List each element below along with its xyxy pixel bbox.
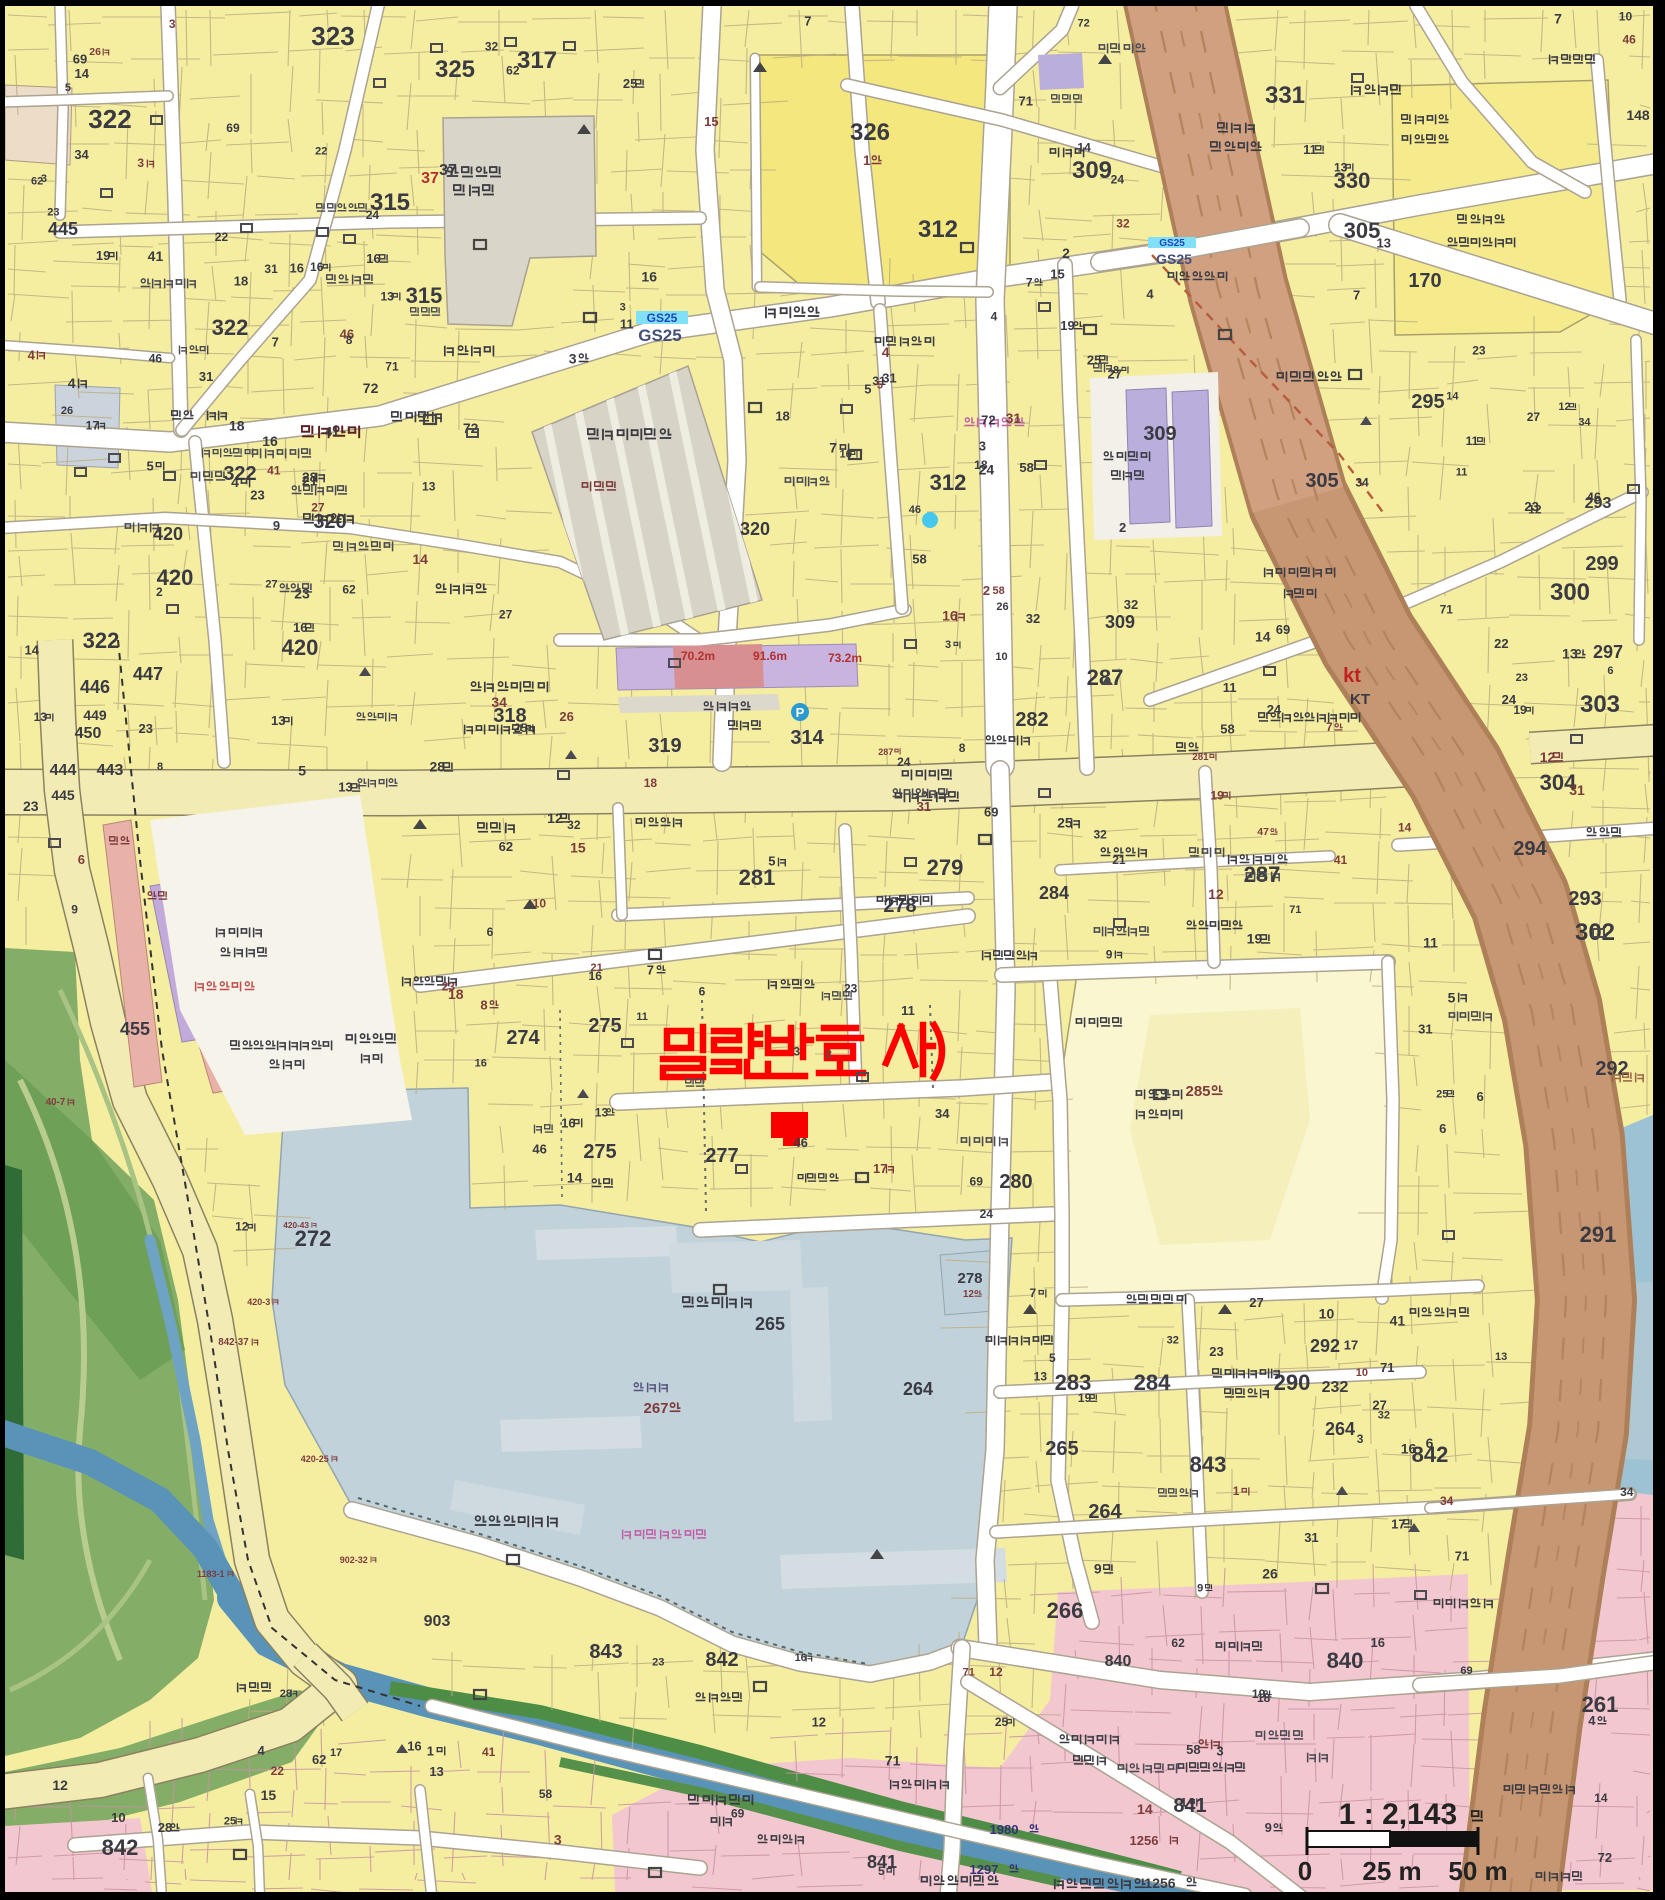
svg-text:31: 31 (1418, 1021, 1432, 1036)
svg-text:16: 16 (1401, 1441, 1417, 1457)
svg-text:27: 27 (265, 579, 277, 591)
svg-text:14: 14 (74, 66, 89, 81)
svg-text:46: 46 (793, 1135, 807, 1150)
svg-text:8: 8 (480, 997, 487, 1012)
svg-text:26: 26 (996, 601, 1008, 613)
svg-text:5: 5 (864, 381, 871, 396)
svg-text:9: 9 (273, 518, 280, 533)
svg-text:842: 842 (102, 1835, 139, 1860)
svg-text:GS25: GS25 (1159, 238, 1185, 249)
svg-text:13: 13 (1495, 1351, 1507, 1363)
svg-text:16: 16 (942, 607, 958, 623)
svg-text:32: 32 (485, 40, 499, 54)
svg-text:46: 46 (909, 504, 921, 516)
svg-text:305: 305 (1305, 470, 1338, 492)
svg-text:2: 2 (156, 585, 163, 599)
svg-text:P: P (796, 705, 805, 720)
svg-text:315: 315 (406, 283, 443, 308)
svg-text:322: 322 (212, 315, 249, 340)
svg-text:46: 46 (1587, 490, 1601, 505)
svg-text:1980: 1980 (990, 1822, 1019, 1837)
svg-text:28: 28 (158, 1820, 172, 1835)
svg-text:23: 23 (250, 488, 264, 503)
svg-text:5: 5 (878, 1864, 885, 1878)
svg-text:27: 27 (499, 608, 513, 622)
svg-text:4: 4 (68, 375, 76, 391)
svg-text:284: 284 (1039, 883, 1069, 903)
svg-text:16: 16 (475, 1058, 487, 1070)
svg-text:7: 7 (272, 334, 279, 349)
svg-text:281: 281 (739, 865, 776, 890)
svg-text:2: 2 (1119, 520, 1126, 535)
svg-text:23: 23 (1209, 1344, 1223, 1359)
svg-text:71: 71 (885, 1752, 901, 1768)
svg-text:62: 62 (312, 1752, 326, 1767)
svg-text:27: 27 (1372, 1398, 1386, 1413)
svg-text:3: 3 (554, 1832, 562, 1848)
svg-text:280: 280 (999, 1171, 1032, 1193)
svg-text:5: 5 (298, 763, 306, 779)
svg-text:71: 71 (1440, 603, 1454, 617)
svg-text:18: 18 (974, 458, 988, 472)
svg-text:14: 14 (412, 551, 428, 567)
svg-text:447: 447 (133, 664, 163, 684)
svg-text:41: 41 (1334, 853, 1348, 867)
svg-text:8: 8 (157, 761, 163, 773)
svg-text:41: 41 (1390, 1312, 1406, 1328)
svg-text:23: 23 (47, 207, 59, 219)
svg-text:7: 7 (829, 440, 837, 456)
svg-text:31: 31 (1006, 410, 1022, 426)
svg-text:24: 24 (366, 208, 380, 222)
svg-text:58: 58 (1220, 722, 1234, 737)
svg-text:18: 18 (775, 408, 789, 423)
svg-text:7: 7 (647, 962, 654, 977)
svg-text:GS25: GS25 (638, 326, 681, 345)
svg-text:19: 19 (1513, 703, 1527, 717)
svg-text:72: 72 (363, 380, 379, 396)
svg-text:40-7: 40-7 (46, 1097, 66, 1108)
svg-text:275: 275 (583, 1141, 616, 1163)
svg-text:12: 12 (963, 1289, 974, 1300)
svg-text:12: 12 (812, 1714, 826, 1729)
svg-text:3: 3 (169, 17, 176, 31)
svg-text:15: 15 (570, 840, 586, 856)
svg-text:8: 8 (346, 333, 353, 347)
svg-text:3: 3 (620, 301, 626, 313)
svg-text:21: 21 (590, 962, 602, 974)
svg-text:69: 69 (226, 121, 240, 135)
svg-text:19: 19 (1060, 318, 1074, 333)
svg-text:13: 13 (338, 780, 352, 795)
svg-text:297: 297 (1593, 642, 1623, 662)
svg-text:264: 264 (1088, 1501, 1122, 1523)
svg-text:7: 7 (1026, 276, 1033, 290)
svg-text:148: 148 (1626, 107, 1650, 123)
svg-text:3: 3 (793, 1045, 800, 1059)
svg-text:2: 2 (983, 583, 990, 598)
svg-text:1256: 1256 (1130, 1833, 1159, 1848)
svg-text:285: 285 (1185, 1083, 1210, 1100)
svg-text:16: 16 (366, 251, 380, 266)
svg-text:278: 278 (957, 1270, 982, 1287)
svg-text:27: 27 (1527, 410, 1541, 424)
svg-text:GS25: GS25 (647, 311, 678, 325)
svg-text:23: 23 (23, 798, 39, 814)
svg-text:842: 842 (705, 1649, 738, 1671)
svg-text:23: 23 (1472, 343, 1486, 357)
svg-text:69: 69 (73, 51, 87, 66)
svg-text:322: 322 (88, 104, 131, 134)
svg-text:6: 6 (487, 925, 494, 939)
svg-text:293: 293 (1568, 888, 1601, 910)
svg-text:443: 443 (97, 762, 124, 779)
svg-text:70.2m: 70.2m (681, 649, 715, 663)
svg-text:69: 69 (1276, 622, 1290, 637)
svg-text:279: 279 (927, 855, 964, 880)
svg-text:16: 16 (262, 433, 278, 449)
svg-text:13: 13 (595, 1106, 609, 1120)
svg-text:13: 13 (422, 480, 436, 494)
svg-text:9: 9 (1106, 947, 1113, 961)
svg-text:9: 9 (1094, 1560, 1102, 1576)
svg-text:14: 14 (1255, 629, 1271, 645)
svg-text:267: 267 (643, 1400, 668, 1417)
svg-text:25: 25 (224, 1815, 236, 1827)
svg-text:69: 69 (984, 805, 998, 820)
svg-text:26: 26 (559, 709, 573, 724)
svg-text:0: 0 (1298, 1856, 1312, 1886)
svg-text:34: 34 (1440, 1494, 1454, 1508)
svg-text:6: 6 (1439, 1121, 1446, 1136)
svg-text:1: 1 (863, 153, 871, 168)
svg-text:22: 22 (215, 230, 229, 244)
svg-text:2: 2 (1062, 245, 1070, 261)
svg-text:903: 903 (424, 1613, 451, 1630)
svg-text:22: 22 (1494, 636, 1508, 651)
svg-text:16: 16 (1371, 1635, 1385, 1650)
svg-text:58: 58 (1186, 1742, 1200, 1757)
svg-text:71: 71 (963, 1667, 975, 1679)
svg-text:8: 8 (825, 1047, 832, 1061)
svg-text:13: 13 (429, 1764, 443, 1779)
svg-text:28: 28 (280, 1688, 292, 1700)
svg-text:50 m: 50 m (1448, 1856, 1507, 1886)
svg-text:26: 26 (61, 405, 73, 417)
svg-text:3: 3 (41, 173, 47, 185)
svg-text:3: 3 (945, 639, 951, 651)
svg-text:4: 4 (258, 1743, 266, 1758)
svg-text:25: 25 (995, 1715, 1009, 1729)
svg-text:902-32: 902-32 (340, 1555, 368, 1565)
svg-text:291: 291 (1580, 1222, 1617, 1247)
svg-text:34: 34 (74, 147, 89, 162)
svg-text:41: 41 (482, 1745, 496, 1759)
svg-text:11: 11 (1223, 680, 1237, 695)
svg-text:15: 15 (1050, 267, 1064, 282)
svg-text:1297: 1297 (970, 1862, 999, 1877)
svg-text:46: 46 (532, 1142, 546, 1157)
svg-text:72: 72 (1598, 1850, 1612, 1865)
svg-text:KT: KT (1350, 691, 1370, 708)
svg-text:7: 7 (1029, 1286, 1036, 1300)
svg-text:12: 12 (989, 1665, 1003, 1679)
svg-text:17: 17 (330, 1747, 342, 1759)
svg-text:1: 1 (427, 1743, 434, 1758)
svg-text:18: 18 (229, 417, 245, 433)
svg-text:309: 309 (1143, 423, 1176, 445)
svg-text:294: 294 (1513, 838, 1547, 860)
svg-text:444: 444 (50, 762, 77, 779)
svg-text:275: 275 (588, 1015, 621, 1037)
svg-text:25: 25 (514, 721, 528, 735)
svg-text:15: 15 (704, 114, 718, 129)
svg-text:28: 28 (429, 759, 445, 775)
svg-text:11: 11 (636, 1011, 648, 1023)
svg-text:14: 14 (1398, 821, 1412, 835)
svg-text:23: 23 (652, 1656, 664, 1668)
svg-text:3: 3 (1216, 1743, 1223, 1758)
svg-text:71: 71 (1455, 1549, 1469, 1564)
svg-text:13: 13 (34, 710, 48, 724)
svg-text:16: 16 (407, 1738, 421, 1753)
svg-text:31: 31 (264, 262, 278, 276)
svg-text:420-25: 420-25 (301, 1454, 329, 1464)
svg-text:34: 34 (491, 694, 507, 710)
svg-text:295: 295 (1411, 391, 1444, 413)
svg-text:22: 22 (271, 1764, 285, 1778)
svg-text:305: 305 (1344, 218, 1381, 243)
svg-text:62: 62 (1171, 1636, 1185, 1650)
svg-text:261: 261 (1582, 1692, 1619, 1717)
svg-text:312: 312 (930, 470, 967, 495)
svg-text:6: 6 (1426, 1435, 1434, 1451)
svg-text:15: 15 (261, 1787, 277, 1803)
svg-text:1: 1 (1233, 1484, 1240, 1498)
svg-text:27: 27 (311, 501, 325, 515)
svg-text:314: 314 (790, 727, 824, 749)
svg-text:446: 446 (80, 677, 110, 697)
svg-text:277: 277 (705, 1145, 738, 1167)
svg-text:69: 69 (970, 1175, 984, 1189)
svg-text:13: 13 (1562, 646, 1578, 662)
svg-text:1256: 1256 (1144, 1875, 1175, 1891)
svg-text:842-37: 842-37 (218, 1337, 248, 1348)
svg-text:302: 302 (1575, 919, 1615, 946)
svg-text:10: 10 (111, 1810, 125, 1825)
svg-text:34: 34 (935, 1106, 950, 1121)
svg-text:71: 71 (1019, 94, 1033, 109)
svg-text:840: 840 (1327, 1648, 1364, 1673)
svg-text:6: 6 (1607, 665, 1613, 677)
svg-text:62: 62 (342, 583, 356, 597)
svg-text:3: 3 (979, 439, 986, 454)
svg-text:1 : 2,143: 1 : 2,143 (1339, 1798, 1457, 1831)
svg-text:265: 265 (1045, 1438, 1078, 1460)
svg-text:4: 4 (1146, 286, 1154, 301)
svg-text:420-3: 420-3 (247, 1297, 270, 1307)
svg-text:41: 41 (325, 424, 339, 439)
svg-text:27: 27 (1249, 1295, 1263, 1310)
svg-text:72: 72 (1077, 18, 1089, 30)
svg-text:6: 6 (1476, 1089, 1483, 1104)
svg-text:3: 3 (569, 350, 577, 366)
svg-text:12: 12 (1528, 502, 1542, 516)
svg-text:16: 16 (310, 260, 324, 274)
svg-text:303: 303 (1580, 691, 1620, 718)
svg-text:46: 46 (1622, 33, 1636, 47)
svg-text:4: 4 (882, 344, 890, 360)
svg-text:843: 843 (589, 1641, 622, 1663)
svg-text:449: 449 (83, 707, 107, 723)
svg-text:7: 7 (1353, 287, 1360, 302)
svg-text:11: 11 (1303, 142, 1317, 157)
svg-text:72: 72 (463, 420, 479, 436)
svg-text:19: 19 (1210, 789, 1224, 803)
svg-text:4: 4 (991, 309, 998, 323)
svg-text:24: 24 (1111, 172, 1125, 186)
svg-text:11: 11 (620, 317, 634, 332)
svg-text:14: 14 (1137, 1801, 1153, 1817)
svg-text:71: 71 (1289, 904, 1301, 916)
svg-text:5: 5 (65, 82, 71, 94)
svg-text:10: 10 (995, 651, 1007, 663)
svg-text:13: 13 (1377, 236, 1391, 251)
svg-text:265: 265 (755, 1314, 785, 1334)
svg-text:71: 71 (385, 360, 399, 374)
svg-text:32: 32 (1026, 611, 1040, 626)
svg-text:32: 32 (1094, 827, 1108, 841)
svg-text:13: 13 (271, 713, 285, 728)
svg-text:26: 26 (89, 46, 101, 58)
svg-text:7: 7 (804, 13, 811, 28)
svg-text:14: 14 (1446, 390, 1459, 402)
svg-text:31: 31 (917, 799, 931, 814)
svg-text:11: 11 (1456, 467, 1468, 479)
svg-text:14: 14 (24, 643, 39, 658)
svg-text:445: 445 (51, 787, 75, 803)
svg-text:32: 32 (1124, 597, 1138, 612)
svg-text:8: 8 (959, 741, 966, 755)
svg-text:16: 16 (795, 1652, 807, 1664)
svg-text:24: 24 (1267, 702, 1282, 717)
svg-text:4: 4 (231, 474, 239, 490)
svg-text:12: 12 (1208, 886, 1224, 902)
svg-text:7: 7 (1554, 10, 1562, 26)
svg-text:37: 37 (421, 170, 439, 187)
svg-text:309: 309 (1105, 612, 1135, 632)
svg-text:25: 25 (1436, 1088, 1448, 1100)
svg-text:9: 9 (71, 903, 78, 917)
svg-text:13: 13 (380, 289, 394, 303)
svg-text:282: 282 (1015, 709, 1048, 731)
svg-text:34: 34 (1578, 417, 1591, 429)
svg-text:309: 309 (1072, 157, 1112, 184)
svg-text:287: 287 (1087, 665, 1124, 690)
svg-text:14: 14 (1077, 140, 1091, 154)
svg-text:14: 14 (567, 1170, 583, 1186)
svg-text:58: 58 (992, 585, 1004, 597)
svg-text:312: 312 (918, 216, 958, 243)
svg-text:264: 264 (1325, 1419, 1355, 1439)
svg-text:10: 10 (1319, 1306, 1335, 1322)
svg-text:232: 232 (1322, 1379, 1349, 1396)
svg-text:317: 317 (517, 47, 557, 74)
svg-text:264: 264 (903, 1379, 933, 1399)
svg-text:73.2m: 73.2m (828, 651, 862, 665)
svg-text:12: 12 (235, 1220, 249, 1234)
svg-text:18: 18 (644, 776, 658, 790)
svg-text:34: 34 (1355, 476, 1369, 490)
svg-text:284: 284 (1134, 1370, 1171, 1395)
svg-text:9: 9 (1265, 1820, 1272, 1835)
svg-text:299: 299 (1585, 553, 1618, 575)
svg-text:58: 58 (912, 551, 926, 566)
svg-text:323: 323 (311, 21, 354, 51)
svg-text:319: 319 (648, 735, 681, 757)
svg-text:18: 18 (234, 274, 248, 289)
svg-text:32: 32 (567, 818, 581, 832)
svg-text:9: 9 (1197, 1583, 1203, 1595)
svg-text:23: 23 (1516, 672, 1528, 684)
svg-text:69: 69 (1460, 1665, 1472, 1677)
svg-text:91.6m: 91.6m (753, 649, 787, 663)
svg-text:450: 450 (75, 725, 102, 742)
svg-text:420-43: 420-43 (283, 1221, 309, 1230)
svg-text:58: 58 (1019, 460, 1033, 475)
svg-text:25 m: 25 m (1362, 1856, 1421, 1886)
svg-text:1183-1: 1183-1 (197, 1569, 225, 1579)
svg-text:31: 31 (199, 369, 213, 384)
svg-text:1: 1 (1180, 1796, 1187, 1810)
svg-text:6: 6 (78, 852, 85, 867)
svg-text:281: 281 (1192, 752, 1209, 763)
svg-text:843: 843 (1190, 1452, 1227, 1477)
svg-text:170: 170 (1408, 270, 1441, 292)
svg-text:325: 325 (435, 56, 475, 83)
svg-text:31: 31 (882, 371, 896, 386)
svg-text:420: 420 (282, 635, 319, 660)
svg-text:841: 841 (1173, 1795, 1206, 1817)
svg-text:3: 3 (137, 156, 144, 170)
svg-text:287: 287 (878, 747, 893, 757)
svg-text:5: 5 (147, 458, 154, 473)
svg-text:17: 17 (873, 1161, 887, 1176)
svg-text:23: 23 (442, 980, 456, 994)
svg-text:19: 19 (96, 248, 110, 263)
svg-text:17: 17 (86, 419, 100, 433)
svg-text:14: 14 (1594, 1791, 1608, 1805)
svg-text:274: 274 (506, 1027, 540, 1049)
svg-text:11: 11 (1466, 434, 1479, 448)
svg-text:34: 34 (1620, 1485, 1634, 1499)
svg-text:47: 47 (1257, 826, 1269, 838)
svg-text:326: 326 (850, 119, 890, 146)
svg-text:58: 58 (539, 1787, 553, 1801)
svg-text:62: 62 (506, 63, 520, 77)
svg-text:5: 5 (1448, 989, 1456, 1005)
svg-text:31: 31 (1569, 782, 1585, 798)
svg-text:16: 16 (561, 1115, 575, 1130)
svg-text:445: 445 (48, 219, 78, 239)
svg-text:24: 24 (897, 755, 911, 769)
svg-text:322: 322 (223, 463, 256, 485)
svg-text:5: 5 (768, 854, 775, 869)
svg-text:455: 455 (120, 1019, 150, 1039)
svg-text:7: 7 (1326, 720, 1333, 734)
svg-text:12: 12 (1558, 401, 1570, 413)
svg-text:13: 13 (1034, 1370, 1048, 1384)
